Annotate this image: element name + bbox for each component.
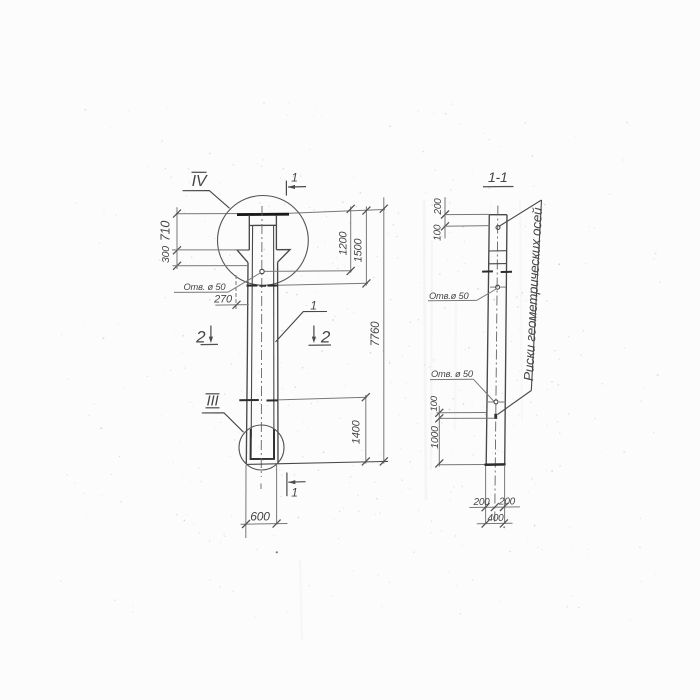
svg-text:III: III [207, 392, 219, 409]
svg-text:Отв. ø 50: Отв. ø 50 [184, 282, 227, 292]
svg-text:1: 1 [310, 299, 316, 313]
svg-text:200: 200 [433, 198, 444, 216]
svg-text:710: 710 [159, 221, 173, 242]
svg-text:2: 2 [195, 328, 206, 347]
svg-text:IV: IV [192, 173, 208, 190]
svg-text:Отв. ø 50: Отв. ø 50 [431, 369, 474, 379]
svg-text:1: 1 [291, 171, 297, 185]
svg-text:270: 270 [213, 293, 233, 305]
svg-text:1400: 1400 [351, 419, 363, 444]
svg-text:600: 600 [250, 510, 270, 524]
svg-text:100: 100 [433, 224, 444, 241]
svg-text:200: 200 [498, 497, 516, 508]
svg-text:1200: 1200 [337, 231, 349, 256]
svg-text:7760: 7760 [370, 321, 382, 347]
svg-text:200: 200 [472, 497, 490, 508]
svg-text:1: 1 [291, 486, 297, 500]
svg-text:400: 400 [487, 513, 504, 524]
svg-text:Отв.ø 50: Отв.ø 50 [429, 291, 469, 301]
svg-text:2: 2 [320, 328, 331, 347]
svg-text:1-1: 1-1 [488, 169, 508, 185]
svg-text:1500: 1500 [353, 238, 365, 263]
svg-text:300: 300 [160, 246, 172, 263]
